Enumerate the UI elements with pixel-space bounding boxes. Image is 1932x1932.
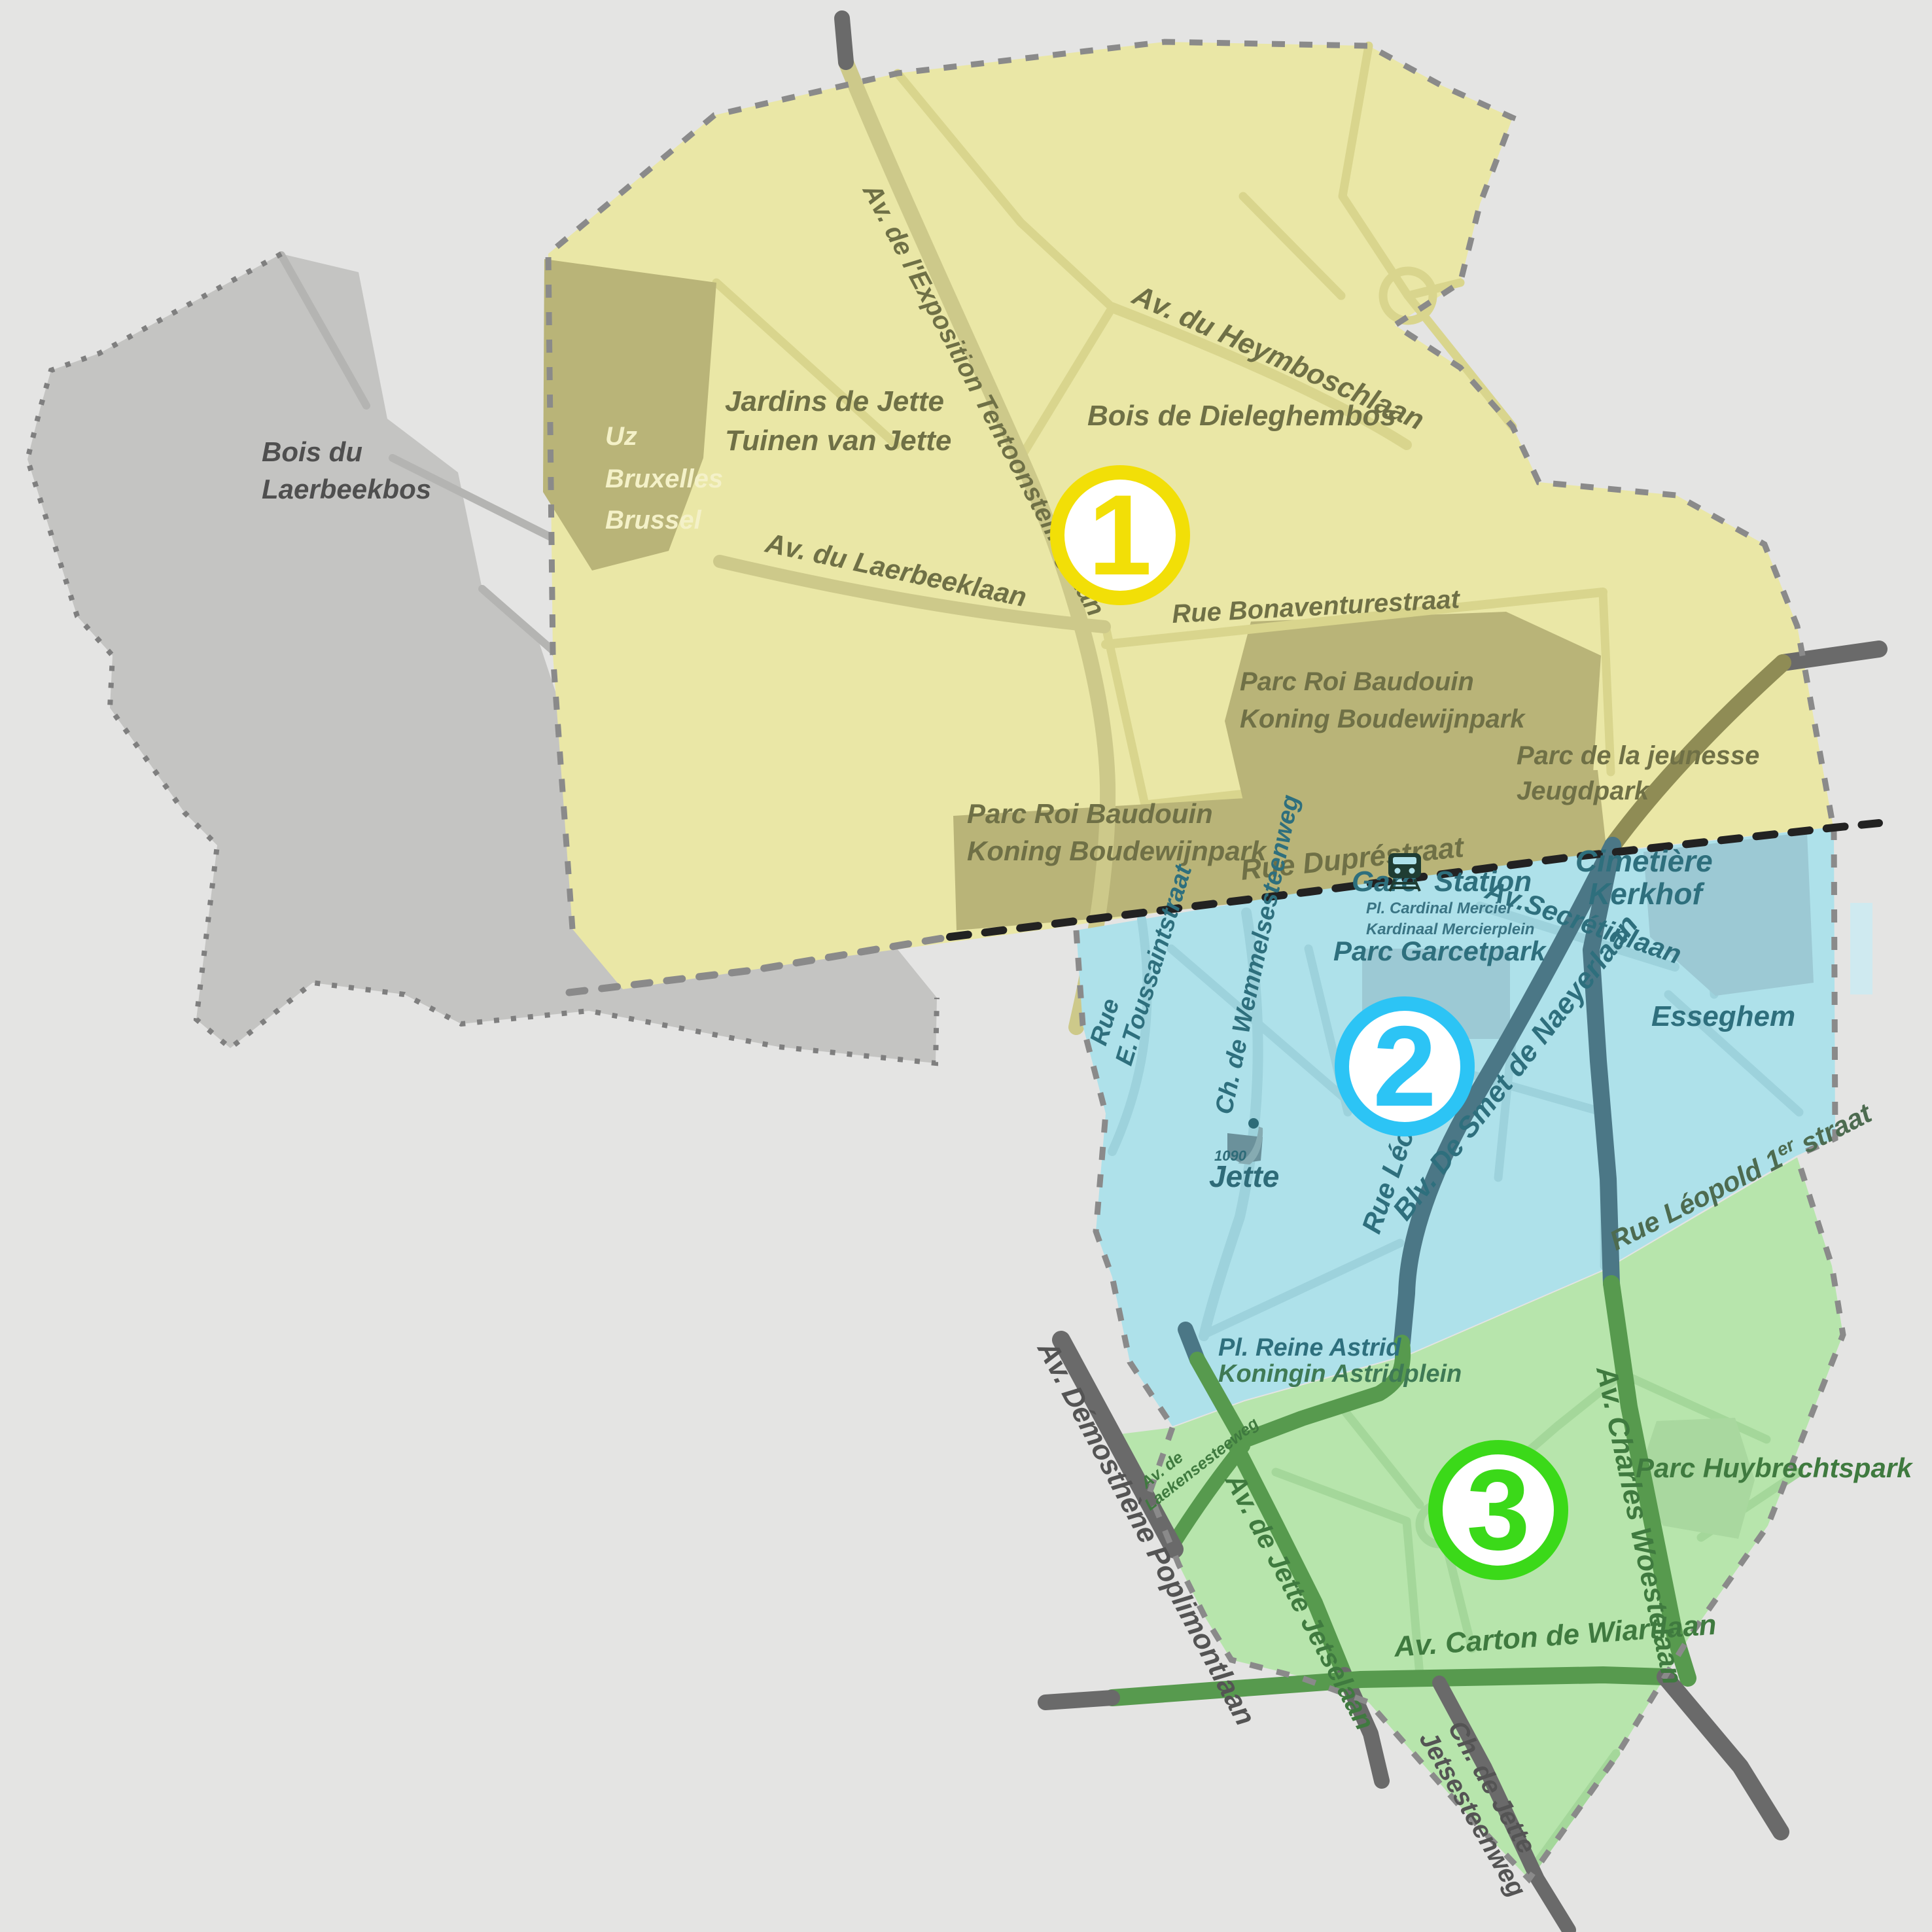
label-dieleghembos: Bois de Dieleghembos [1087, 400, 1396, 432]
label-parc-baudouin1-line1: Parc Roi Baudouin [1240, 667, 1474, 696]
jette-logo-name: Jette [1209, 1159, 1279, 1193]
label-astrid-line1: Pl. Reine Astrid [1218, 1334, 1401, 1361]
label-laerbeekbos-line2: Laerbeekbos [262, 474, 431, 504]
label-jeunesse-line2: Jeugdpark [1517, 777, 1650, 805]
label-cimetiere-line2: Kerkhof [1589, 877, 1705, 911]
zone-marker-1-number: 1 [1088, 472, 1151, 599]
label-parc-baudouin2-line1: Parc Roi Baudouin [967, 798, 1213, 829]
label-uz-line3: Brussel [605, 506, 702, 535]
zone-marker-1: 1 [1057, 472, 1183, 599]
road-carton-west-stub [1045, 1698, 1112, 1702]
label-cimetiere-line1: Cimetière [1575, 844, 1713, 878]
zone-marker-3-number: 3 [1466, 1447, 1530, 1574]
label-uz-line1: Uz [605, 422, 637, 451]
road-exposition-north-stub [842, 18, 846, 62]
zone-marker-3: 3 [1435, 1447, 1561, 1574]
zone-marker-2-number: 2 [1373, 1003, 1436, 1131]
jette-logo-dot [1248, 1118, 1259, 1129]
label-astrid-line2: Koningin Astridplein [1218, 1360, 1462, 1388]
label-jardins-line2: Tuinen van Jette [725, 425, 951, 457]
cemetery-annex-area [1850, 903, 1872, 994]
label-huybrechts: Parc Huybrechtspark [1636, 1452, 1914, 1483]
jette-zones-map: Bois du Laerbeekbos Uz Bruxelles Brussel… [0, 0, 1932, 1932]
label-parc-baudouin2-line2: Koning Boudewijnpark [967, 835, 1268, 866]
label-jardins-line1: Jardins de Jette [725, 385, 944, 417]
label-laerbeekbos-line1: Bois du [262, 436, 362, 467]
label-parc-baudouin1-line2: Koning Boudewijnpark [1240, 705, 1526, 733]
label-jeunesse-line1: Parc de la jeunesse [1517, 741, 1759, 770]
label-uz-line2: Bruxelles [605, 465, 723, 493]
zone-marker-2: 2 [1342, 1003, 1467, 1131]
label-esseghem: Esseghem [1651, 1000, 1795, 1032]
label-garcet: Parc Garcetpark [1333, 936, 1547, 966]
